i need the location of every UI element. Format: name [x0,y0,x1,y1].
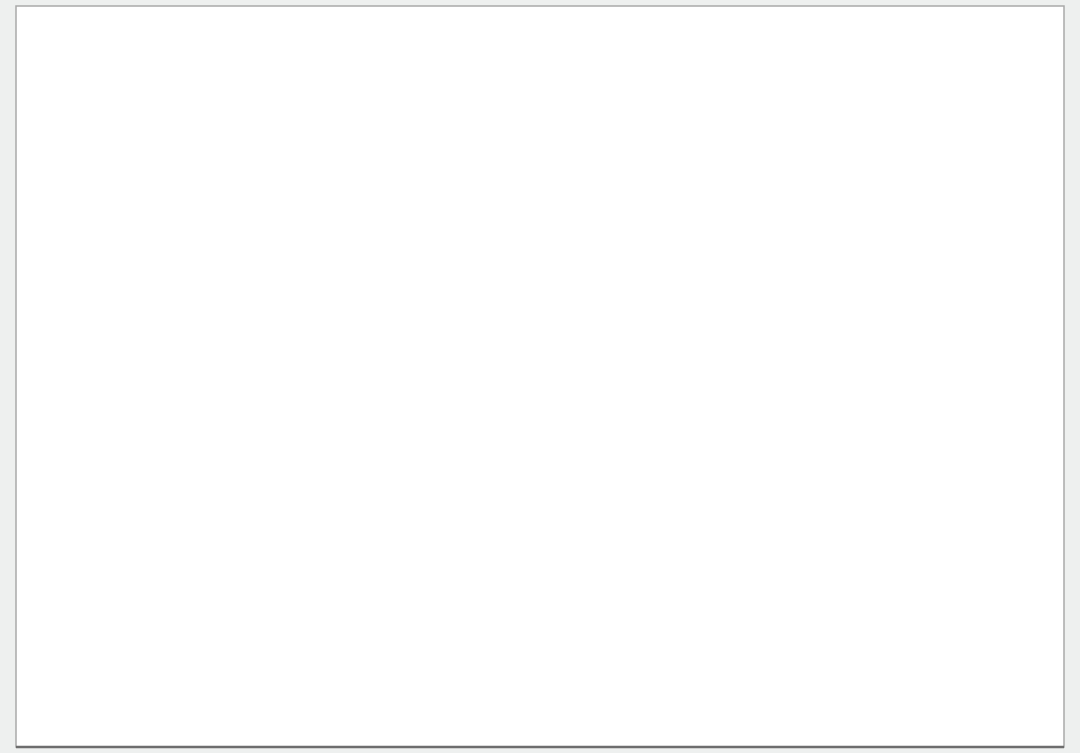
site-plan-screenshot: O SAN PEDROAV. SIGLO XXI1761751741731721… [0,0,1080,753]
site-plan-canvas: O SAN PEDROAV. SIGLO XXI1761751741731721… [0,0,1080,753]
sheet-border [16,6,1064,747]
